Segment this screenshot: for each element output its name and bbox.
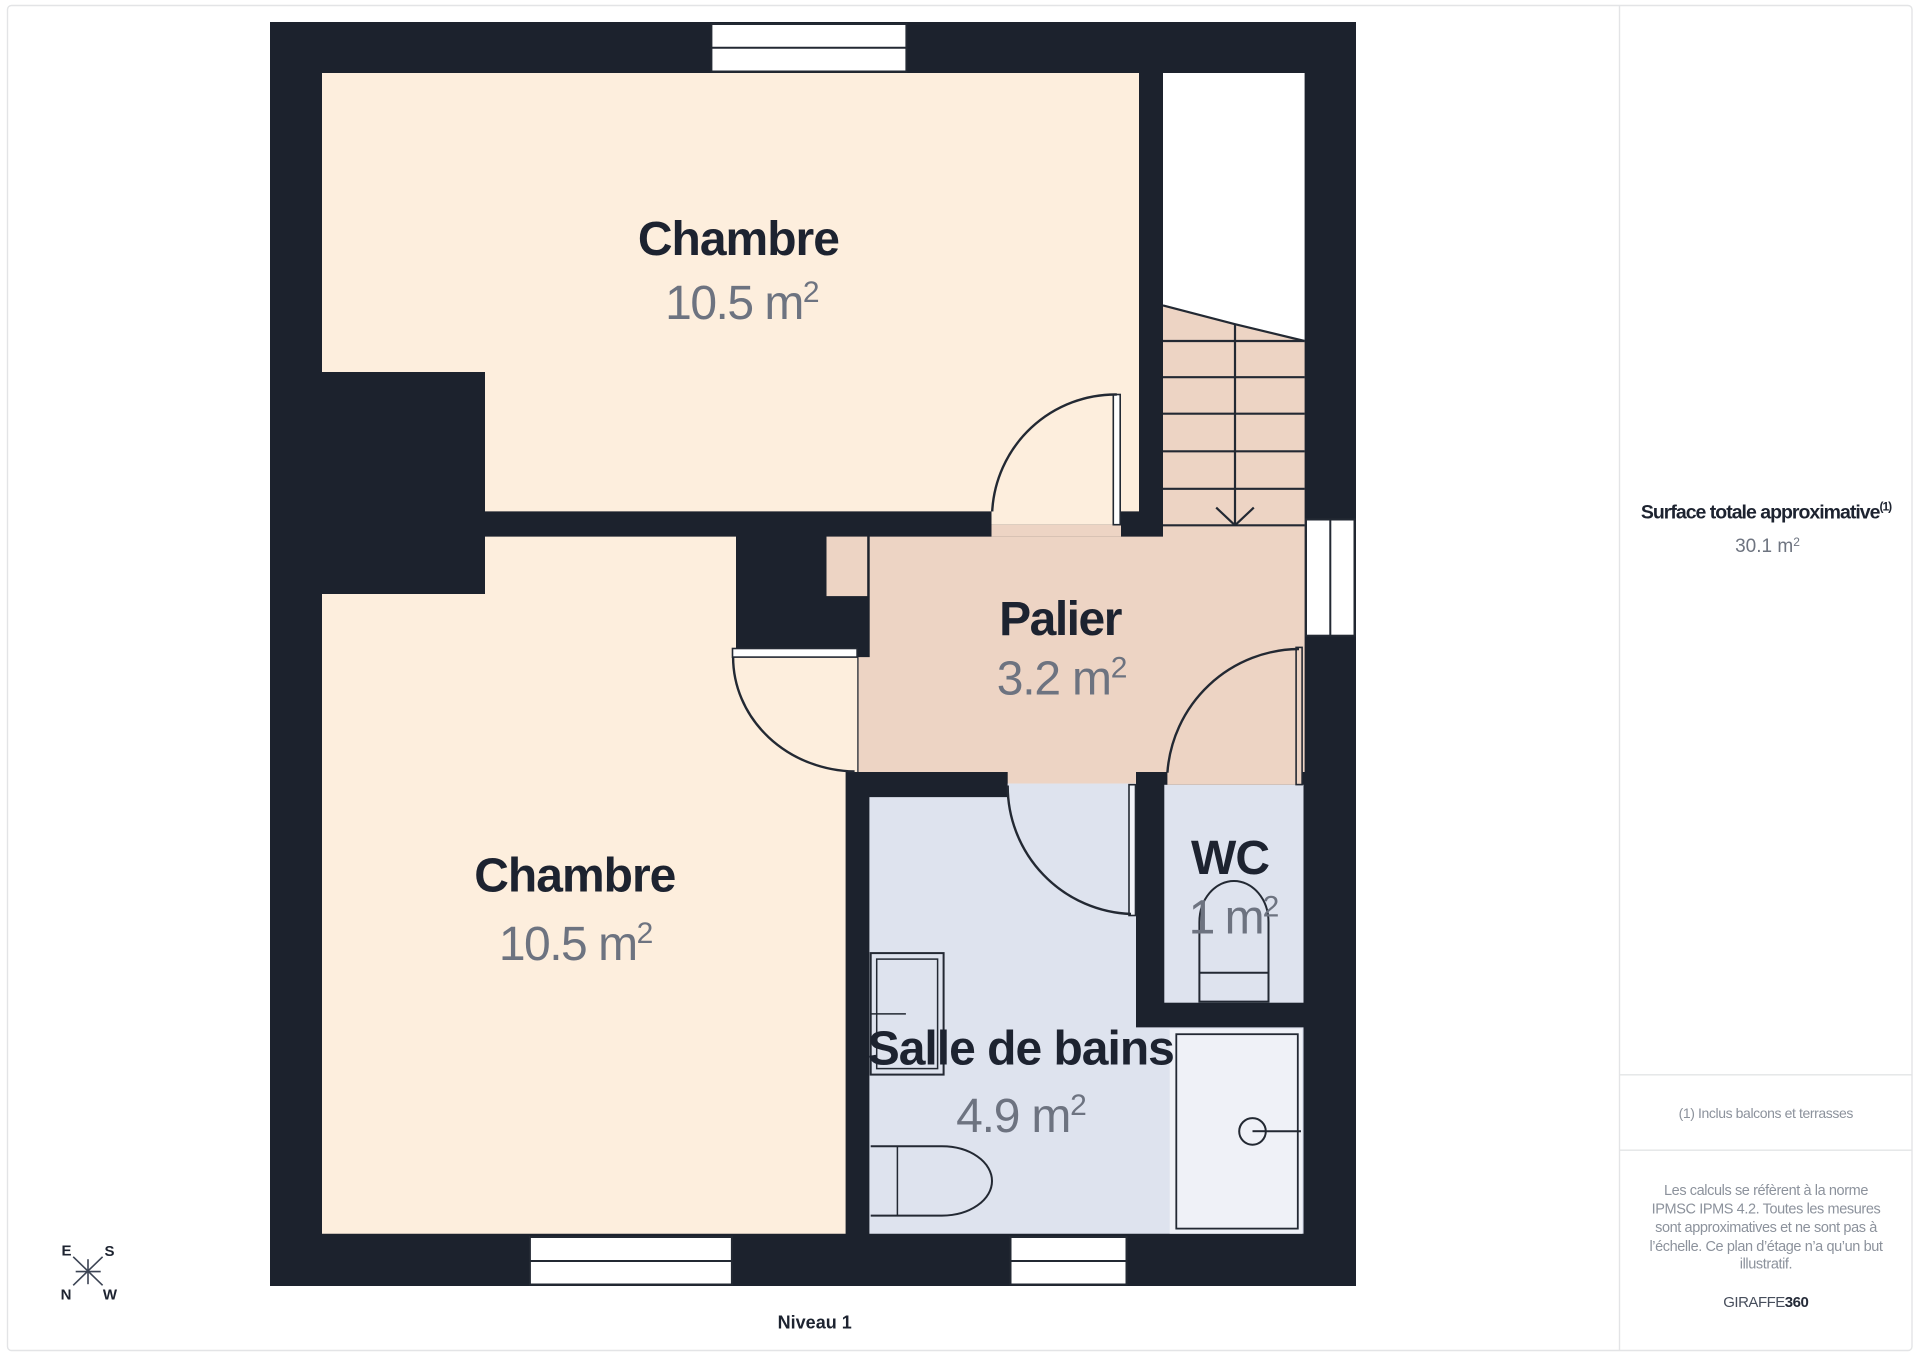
- svg-text:Palier: Palier: [999, 593, 1122, 646]
- svg-text:Surface totale approximative(1: Surface totale approximative(1): [1641, 499, 1892, 523]
- svg-text:30.1 m2: 30.1 m2: [1735, 535, 1800, 557]
- svg-text:Niveau 1: Niveau 1: [778, 1313, 852, 1333]
- svg-text:S: S: [104, 1243, 114, 1260]
- svg-text:N: N: [61, 1287, 72, 1304]
- svg-text:GIRAFFE360: GIRAFFE360: [1723, 1294, 1808, 1311]
- svg-text:l’échelle. Ce plan d’étage n’a: l’échelle. Ce plan d’étage n’a qu’un but: [1649, 1239, 1882, 1255]
- svg-text:Chambre: Chambre: [474, 850, 675, 903]
- svg-text:Chambre: Chambre: [638, 213, 839, 266]
- svg-text:(1) Inclus balcons et terrasse: (1) Inclus balcons et terrasses: [1679, 1105, 1854, 1121]
- svg-text:IPMSC IPMS 4.2. Toutes les mes: IPMSC IPMS 4.2. Toutes les mesures: [1652, 1202, 1881, 1218]
- svg-text:E: E: [61, 1243, 71, 1260]
- svg-text:3.2 m2: 3.2 m2: [997, 651, 1127, 705]
- svg-text:4.9 m2: 4.9 m2: [956, 1089, 1086, 1143]
- svg-text:Salle de bains: Salle de bains: [868, 1022, 1174, 1075]
- svg-text:Les calculs se réfèrent à la n: Les calculs se réfèrent à la norme: [1664, 1183, 1868, 1199]
- svg-text:sont approximatives et ne sont: sont approximatives et ne sont pas à: [1655, 1220, 1878, 1236]
- svg-text:WC: WC: [1191, 832, 1269, 885]
- svg-text:10.5 m2: 10.5 m2: [665, 276, 819, 330]
- svg-text:W: W: [103, 1287, 118, 1304]
- svg-text:10.5 m2: 10.5 m2: [499, 917, 653, 971]
- svg-text:illustratif.: illustratif.: [1740, 1256, 1792, 1272]
